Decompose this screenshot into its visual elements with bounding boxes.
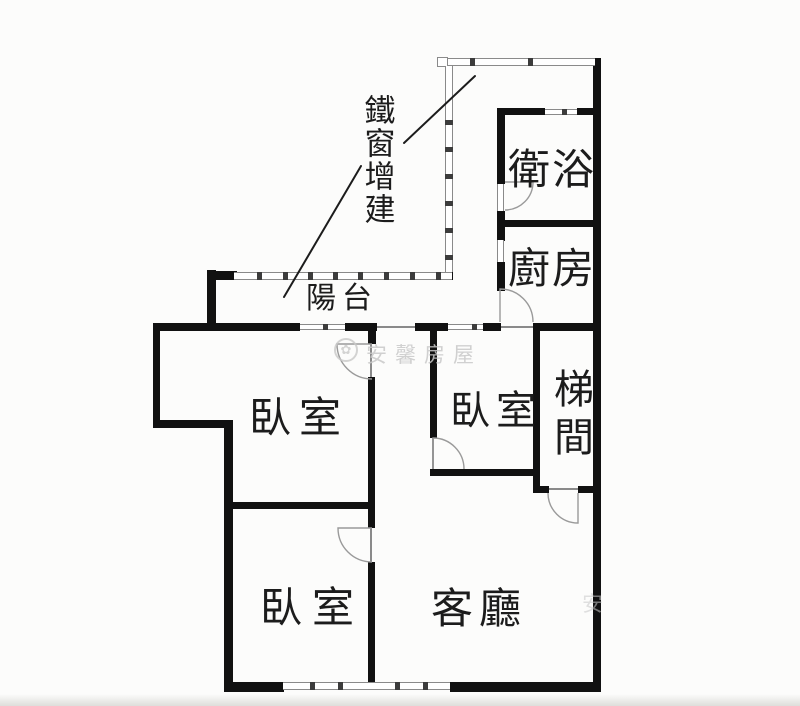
iron-window-annotation: 鐵窗增建 — [360, 94, 393, 226]
door-swing-kitchen — [500, 289, 533, 322]
watermark-text: 安馨房屋 — [366, 339, 482, 369]
leader-line-iron-window-top — [404, 76, 475, 143]
room-label-stairwell: 梯間 — [549, 368, 591, 464]
floor-plan-canvas: 鐵窗增建 陽台 衛浴 廚房 臥室 臥室 梯間 臥室 客廳 ✿ 安馨房屋 安 — [0, 0, 800, 706]
door-swing-stairwell — [548, 493, 578, 523]
room-label-living-room: 客廳 — [431, 587, 527, 631]
room-label-bathroom: 衛浴 — [508, 148, 596, 192]
room-label-balcony: 陽台 — [306, 283, 378, 315]
door-swing-bedroom-lower — [338, 528, 372, 562]
room-label-bedroom-middle: 臥室 — [450, 390, 542, 432]
door-swing-bedroom-middle — [433, 438, 464, 469]
scan-artifact — [0, 694, 800, 706]
leader-line-iron-window-balcony — [284, 166, 361, 297]
watermark-fragment: 安 — [582, 588, 603, 618]
flower-seal-icon: ✿ — [334, 338, 358, 362]
room-label-bedroom-lower: 臥室 — [260, 586, 364, 630]
room-label-kitchen: 廚房 — [508, 247, 596, 291]
room-label-bedroom-upper: 臥室 — [249, 396, 349, 440]
